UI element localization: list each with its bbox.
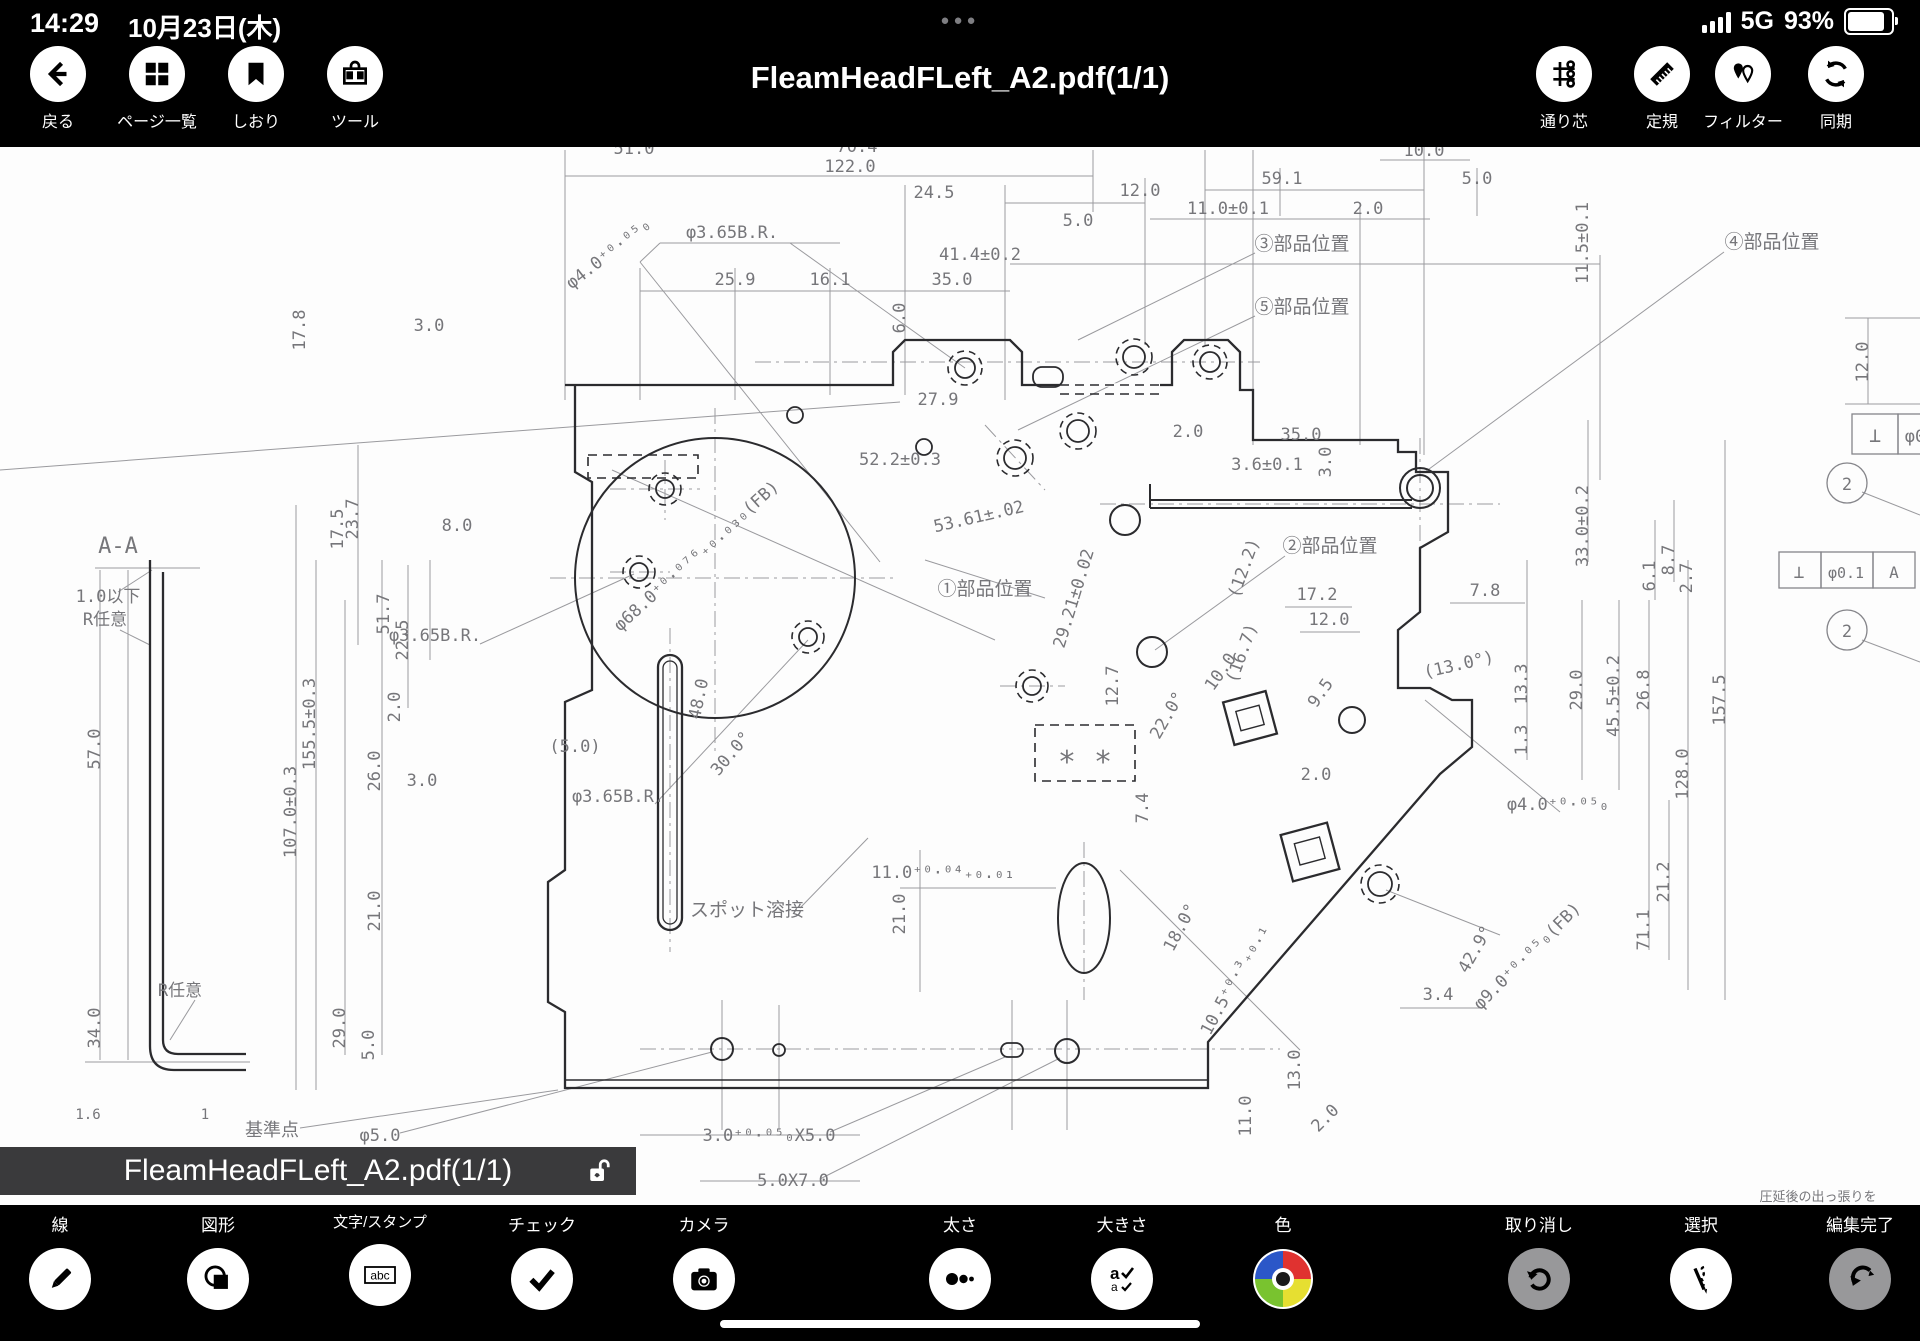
svg-text:51.7: 51.7 <box>374 594 394 635</box>
color-tool-button[interactable]: 色 <box>1223 1211 1343 1310</box>
check-tool-button[interactable]: チェック <box>482 1211 602 1310</box>
svg-text:3.0: 3.0 <box>407 771 438 791</box>
svg-text:スポット溶接: スポット溶接 <box>690 899 804 921</box>
svg-text:2: 2 <box>1842 475 1852 495</box>
svg-text:2.0: 2.0 <box>1173 422 1204 442</box>
undo-button[interactable]: 取り消し <box>1479 1211 1599 1310</box>
svg-text:59.1: 59.1 <box>1262 169 1303 189</box>
svg-text:9.5: 9.5 <box>1304 675 1338 712</box>
svg-text:18.0°: 18.0° <box>1160 900 1202 955</box>
svg-text:13.0: 13.0 <box>1285 1050 1305 1091</box>
svg-text:35.0: 35.0 <box>932 270 973 290</box>
svg-text:22.0°: 22.0° <box>1146 688 1189 742</box>
svg-text:11.0: 11.0 <box>1236 1096 1256 1137</box>
svg-text:1: 1 <box>201 1107 209 1123</box>
svg-text:122.0: 122.0 <box>824 157 875 177</box>
ruler-icon <box>1634 46 1690 102</box>
svg-text:17.2: 17.2 <box>1297 585 1338 605</box>
svg-text:128.0: 128.0 <box>1673 748 1693 799</box>
svg-text:57.0: 57.0 <box>85 729 105 770</box>
svg-text:53.61±.02: 53.61±.02 <box>932 497 1026 537</box>
svg-text:48.0: 48.0 <box>685 677 713 721</box>
svg-text:26.8: 26.8 <box>1634 670 1654 711</box>
pen-icon <box>29 1248 91 1310</box>
svg-text:5.0: 5.0 <box>1063 211 1094 231</box>
file-bar-filename: FleamHeadFLeft_A2.pdf(1/1) <box>124 1154 513 1188</box>
filter-pins-icon <box>1715 46 1771 102</box>
svg-text:12.0: 12.0 <box>1853 342 1873 383</box>
svg-text:17.8: 17.8 <box>290 310 310 351</box>
text-size-icon: aa <box>1091 1248 1153 1310</box>
svg-text:11.0⁺⁰·⁰⁴₊₀.₀₁: 11.0⁺⁰·⁰⁴₊₀.₀₁ <box>871 863 1014 883</box>
svg-text:25.9: 25.9 <box>715 270 756 290</box>
size-tool-button[interactable]: 大きさ aa <box>1062 1211 1182 1310</box>
svg-text:27.9: 27.9 <box>918 390 959 410</box>
pdf-canvas[interactable]: 51.070.4122.024.512.05.059.15.010.04.0⁺⁰… <box>0 0 1920 1341</box>
battery-percent: 93% <box>1784 7 1834 36</box>
svg-text:12.0: 12.0 <box>1120 181 1161 201</box>
svg-text:①部品位置: ①部品位置 <box>937 578 1032 600</box>
svg-text:2.0: 2.0 <box>1353 199 1384 219</box>
svg-text:21.0: 21.0 <box>890 894 910 935</box>
unlock-icon[interactable] <box>584 1156 614 1194</box>
svg-text:29.21±0.02: 29.21±0.02 <box>1050 547 1099 651</box>
svg-text:圧延後の出っ張りを: 圧延後の出っ張りを <box>1759 1190 1876 1205</box>
svg-text:29.0: 29.0 <box>330 1008 350 1049</box>
tolerance-frames <box>1779 414 1920 650</box>
done-arrow-icon <box>1829 1248 1891 1310</box>
svg-text:8.7: 8.7 <box>1659 545 1679 576</box>
svg-text:φ5.0: φ5.0 <box>360 1126 401 1146</box>
undo-icon <box>1508 1248 1570 1310</box>
text-stamp-icon: abc <box>349 1244 411 1306</box>
svg-text:φ9.0⁺⁰·⁰⁵₀(FB): φ9.0⁺⁰·⁰⁵₀(FB) <box>1470 899 1585 1014</box>
svg-text:34.0: 34.0 <box>85 1008 105 1049</box>
svg-text:⊥: ⊥ <box>1869 423 1881 447</box>
svg-text:11.0±0.1: 11.0±0.1 <box>1187 199 1269 219</box>
svg-text:52.2±0.3: 52.2±0.3 <box>859 450 941 470</box>
svg-text:③部品位置: ③部品位置 <box>1254 233 1349 255</box>
ruler-button[interactable]: 定規 <box>1617 46 1707 132</box>
svg-text:2: 2 <box>1842 622 1852 642</box>
svg-text:(13.0°): (13.0°) <box>1422 647 1496 683</box>
part-outline <box>150 340 1472 1088</box>
svg-text:2.7: 2.7 <box>1677 563 1697 594</box>
structural-grid-icon <box>1536 46 1592 102</box>
multitask-dots-icon: ●●● <box>0 12 1920 29</box>
svg-text:φ4.0⁺⁰·⁰⁵₀: φ4.0⁺⁰·⁰⁵₀ <box>1507 795 1609 815</box>
svg-text:1.0以下: 1.0以下 <box>76 587 141 607</box>
svg-text:φ3.65B.R.: φ3.65B.R. <box>572 787 664 807</box>
svg-text:④部品位置: ④部品位置 <box>1724 231 1819 253</box>
svg-text:1.6: 1.6 <box>75 1107 100 1123</box>
pen-tool-button[interactable]: 線 <box>0 1211 120 1310</box>
drawing-dimension-labels: 51.070.4122.024.512.05.059.15.010.04.0⁺⁰… <box>75 119 1920 1205</box>
svg-text:71.1: 71.1 <box>1634 910 1654 951</box>
svg-text:29.0: 29.0 <box>1567 670 1587 711</box>
svg-text:12.7: 12.7 <box>1103 666 1123 707</box>
svg-text:45.5±0.2: 45.5±0.2 <box>1604 655 1624 737</box>
svg-text:②部品位置: ②部品位置 <box>1282 535 1377 557</box>
svg-text:33.0±0.2: 33.0±0.2 <box>1573 485 1593 567</box>
network-type: 5G <box>1741 7 1774 36</box>
home-indicator[interactable] <box>720 1320 1200 1328</box>
shapes-icon <box>187 1248 249 1310</box>
svg-text:13.3: 13.3 <box>1512 664 1532 705</box>
svg-text:3.0⁺⁰·⁰⁵₀X5.0: 3.0⁺⁰·⁰⁵₀X5.0 <box>702 1126 835 1146</box>
app-screen: 51.070.4122.024.512.05.059.15.010.04.0⁺⁰… <box>0 0 1920 1341</box>
svg-text:155.5±0.3: 155.5±0.3 <box>300 678 320 770</box>
filter-button[interactable]: フィルター <box>1698 46 1788 132</box>
thickness-tool-button[interactable]: 太さ <box>900 1211 1020 1310</box>
svg-text:2.0: 2.0 <box>385 692 405 723</box>
svg-text:φ68.0⁺⁰·⁰⁷⁶₊₀.₀₃₀(FB): φ68.0⁺⁰·⁰⁷⁶₊₀.₀₃₀(FB) <box>610 477 783 636</box>
svg-text:23.7: 23.7 <box>343 499 363 540</box>
sync-icon <box>1808 46 1864 102</box>
text-stamp-tool-button[interactable]: 文字/スタンプ abc <box>320 1211 440 1306</box>
svg-text:abc: abc <box>370 1269 389 1283</box>
svg-text:⑤部品位置: ⑤部品位置 <box>1254 296 1349 318</box>
svg-text:5.0: 5.0 <box>1462 169 1493 189</box>
done-editing-button[interactable]: 編集完了 <box>1800 1211 1920 1310</box>
svg-text:5.0X7.0: 5.0X7.0 <box>757 1171 829 1191</box>
file-bar[interactable]: FleamHeadFLeft_A2.pdf(1/1) <box>0 1147 636 1195</box>
svg-text:8.0: 8.0 <box>442 516 473 536</box>
top-bar: 14:29 10月23日(木) ●●● 5G 93% 戻る ページ一覧 しおり <box>0 0 1920 147</box>
svg-text:φ0: φ0 <box>1905 427 1920 447</box>
thickness-dots-icon <box>929 1248 991 1310</box>
svg-text:A-A: A-A <box>98 534 138 559</box>
svg-text:107.0±0.3: 107.0±0.3 <box>281 766 301 858</box>
svg-text:11.5±0.1: 11.5±0.1 <box>1573 202 1593 284</box>
camera-tool-button[interactable]: カメラ <box>644 1211 764 1310</box>
svg-text:3.0: 3.0 <box>414 316 445 336</box>
sync-button[interactable]: 同期 <box>1791 46 1881 132</box>
svg-text:3.0: 3.0 <box>1316 447 1336 478</box>
svg-text:a: a <box>1111 1280 1118 1294</box>
svg-text:30.0°: 30.0° <box>707 728 755 780</box>
svg-text:5.0: 5.0 <box>359 1030 379 1061</box>
select-tool-button[interactable]: 選択 <box>1641 1211 1761 1310</box>
svg-text:φ4.0⁺⁰·⁰⁵₀: φ4.0⁺⁰·⁰⁵₀ <box>562 215 655 294</box>
svg-text:A: A <box>1889 563 1899 582</box>
shape-tool-button[interactable]: 図形 <box>158 1211 278 1310</box>
svg-text:26.0: 26.0 <box>365 751 385 792</box>
svg-text:基準点: 基準点 <box>245 1120 299 1141</box>
svg-text:22.5: 22.5 <box>393 620 413 661</box>
status-bar: 14:29 10月23日(木) ●●● 5G 93% <box>0 0 1920 42</box>
svg-text:* *: * * <box>1058 745 1112 780</box>
svg-text:⊥: ⊥ <box>1794 562 1805 583</box>
svg-text:φ0.1: φ0.1 <box>1828 564 1864 582</box>
svg-text:41.4±0.2: 41.4±0.2 <box>939 245 1021 265</box>
grid-axis-button[interactable]: 通り芯 <box>1519 46 1609 132</box>
svg-text:6.1: 6.1 <box>1640 561 1660 592</box>
signal-icon <box>1702 11 1731 33</box>
svg-text:2.0: 2.0 <box>1308 1101 1344 1137</box>
camera-icon <box>673 1248 735 1310</box>
svg-text:21.2: 21.2 <box>1654 862 1674 903</box>
svg-text:6.0: 6.0 <box>890 303 910 334</box>
battery-icon <box>1844 8 1894 35</box>
svg-text:φ3.65B.R.: φ3.65B.R. <box>686 223 778 243</box>
svg-text:7.8: 7.8 <box>1470 581 1501 601</box>
svg-text:3.4: 3.4 <box>1423 985 1454 1005</box>
color-wheel-icon <box>1252 1248 1314 1310</box>
svg-text:(5.0): (5.0) <box>549 737 600 757</box>
svg-text:42.9°: 42.9° <box>1454 922 1497 976</box>
lasso-icon <box>1670 1248 1732 1310</box>
check-icon <box>511 1248 573 1310</box>
svg-text:R任意: R任意 <box>83 610 127 630</box>
svg-text:157.5: 157.5 <box>1710 674 1730 725</box>
svg-text:3.6±0.1: 3.6±0.1 <box>1231 455 1303 475</box>
svg-text:35.0: 35.0 <box>1281 425 1322 445</box>
svg-text:R任意: R任意 <box>158 981 202 1001</box>
svg-text:(12.2): (12.2) <box>1224 536 1264 601</box>
svg-text:21.0: 21.0 <box>365 891 385 932</box>
svg-text:24.5: 24.5 <box>914 183 955 203</box>
svg-text:2.0: 2.0 <box>1301 765 1332 785</box>
svg-text:12.0: 12.0 <box>1309 610 1350 630</box>
svg-text:16.1: 16.1 <box>810 270 851 290</box>
svg-text:1.3: 1.3 <box>1512 725 1532 756</box>
svg-text:7.4: 7.4 <box>1133 793 1153 824</box>
